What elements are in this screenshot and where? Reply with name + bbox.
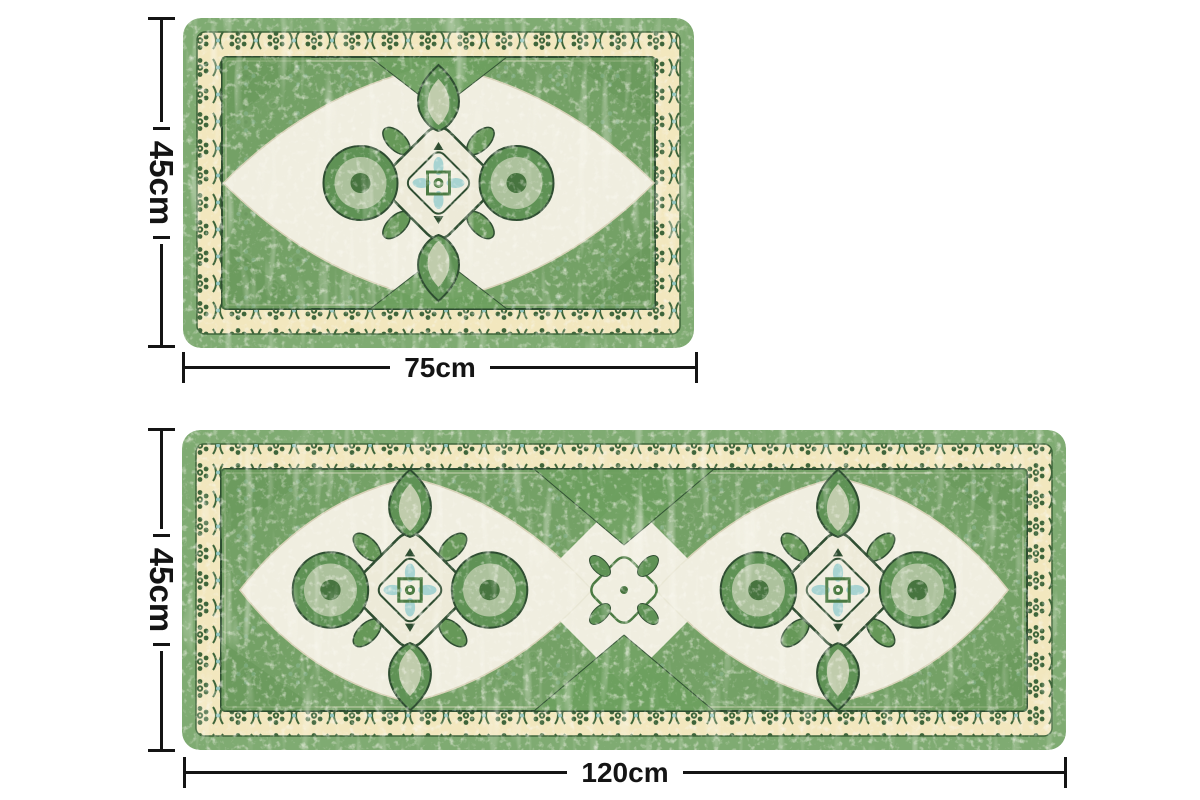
- dimension-tick: [153, 236, 170, 239]
- rug-artwork-canvas: [0, 0, 1200, 800]
- dimension-tick: [153, 127, 170, 130]
- dimension-line-segment: [160, 431, 163, 529]
- dimension-cap: [148, 749, 175, 752]
- top-rug-width-label: 75cm: [390, 352, 490, 384]
- runner-rug-image: [182, 430, 1066, 750]
- dimension-label-box: 45cm: [148, 542, 175, 638]
- top-rug-height-dimension: 45cm: [148, 17, 175, 348]
- top-rug-width-dimension: 75cm: [182, 352, 698, 383]
- bottom-rug-height-dimension: 45cm: [148, 428, 175, 752]
- top-rug-height-label: 45cm: [143, 140, 181, 224]
- dimension-line-segment: [160, 244, 163, 346]
- dimension-line-segment: [160, 20, 163, 122]
- dimension-cap: [148, 345, 175, 348]
- dimension-cap: [695, 352, 698, 383]
- dimension-line-segment: [185, 366, 390, 369]
- bottom-rug-width-dimension: 120cm: [183, 757, 1067, 788]
- bottom-rug-width-label: 120cm: [567, 757, 682, 789]
- dimension-line-segment: [490, 366, 695, 369]
- dimension-cap: [1064, 757, 1067, 788]
- dimension-line-segment: [160, 651, 163, 749]
- dimension-line-segment: [683, 771, 1064, 774]
- dimension-tick: [153, 534, 170, 537]
- dimension-tick: [153, 643, 170, 646]
- dimension-label-box: 45cm: [148, 135, 175, 231]
- product-dimension-diagram: 45cm 75cm 45cm 120cm: [0, 0, 1200, 800]
- bottom-rug-height-label: 45cm: [143, 548, 181, 632]
- dimension-line-segment: [186, 771, 567, 774]
- small-rug-image: [183, 18, 694, 348]
